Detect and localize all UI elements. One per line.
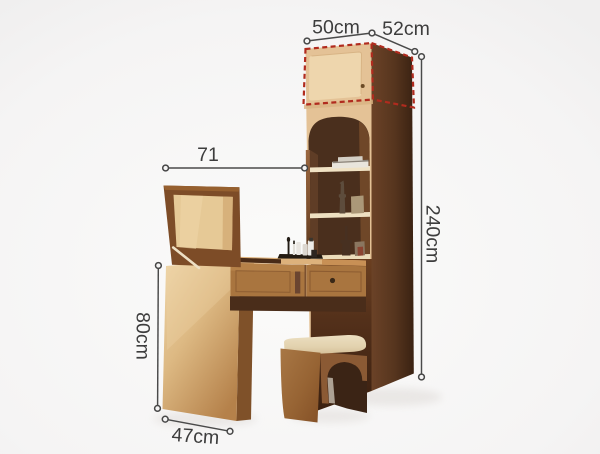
svg-text:50cm: 50cm <box>312 17 360 39</box>
svg-text:52cm: 52cm <box>382 18 430 40</box>
svg-text:71: 71 <box>197 144 219 166</box>
svg-text:240cm: 240cm <box>422 205 444 264</box>
svg-text:47cm: 47cm <box>171 424 220 449</box>
svg-text:80cm: 80cm <box>132 312 154 360</box>
